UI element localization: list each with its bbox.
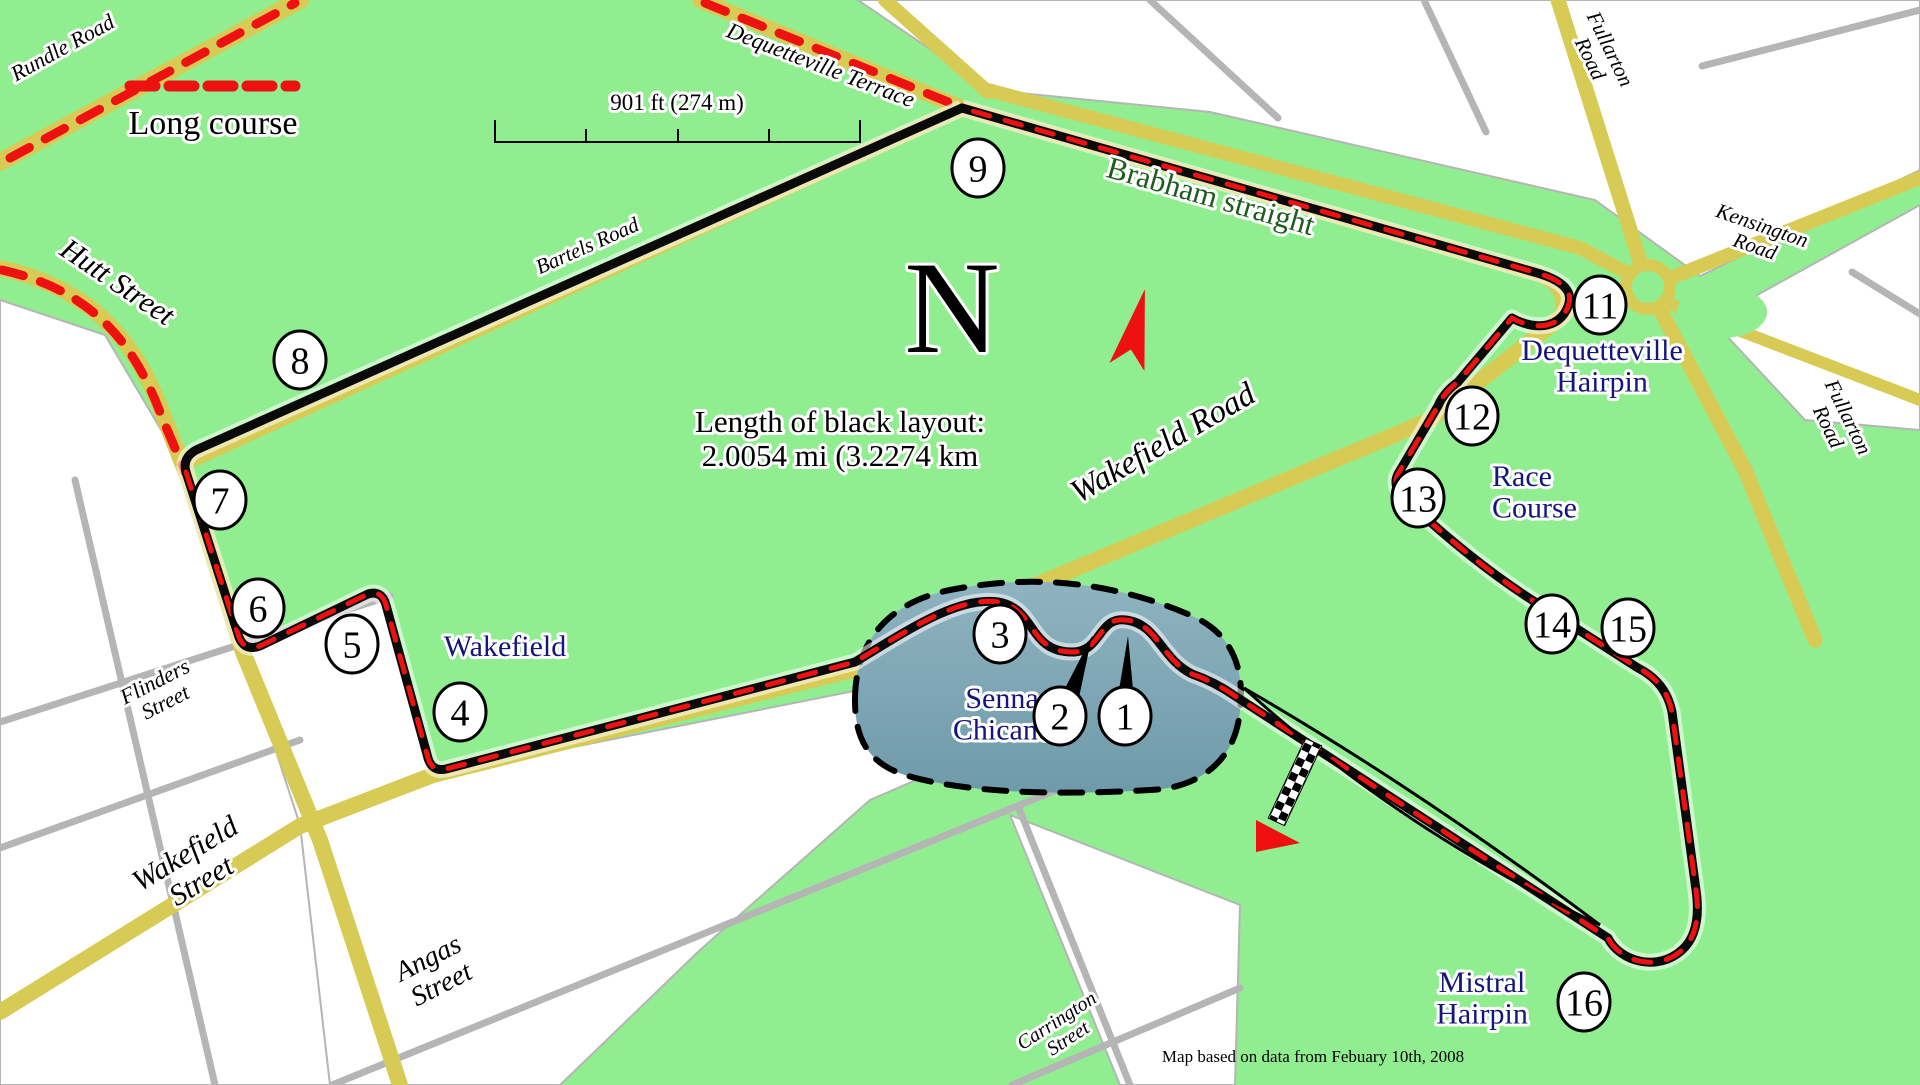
turn-marker-6: 6 <box>232 579 284 637</box>
svg-text:14: 14 <box>1533 605 1571 647</box>
turn-marker-12: 12 <box>1446 387 1498 445</box>
turn-marker-7: 7 <box>194 471 246 529</box>
svg-text:11: 11 <box>1582 286 1619 328</box>
turn-marker-14: 14 <box>1526 595 1578 653</box>
map-canvas: N 901 ft (274 m) Long course Length of b… <box>0 0 1920 1085</box>
svg-text:9: 9 <box>969 149 988 191</box>
roundabout-green-island <box>1677 286 1767 338</box>
scale-label: 901 ft (274 m) <box>610 90 744 115</box>
svg-text:6: 6 <box>249 589 268 631</box>
corner-label-mistral-hairpin: MistralHairpin <box>1436 966 1528 1031</box>
turn-marker-2: 2 <box>1034 687 1086 745</box>
corner-label-wakefield-corner: Wakefield <box>444 630 567 663</box>
length-note-line1: Length of black layout: <box>695 404 985 439</box>
turn-marker-1: 1 <box>1099 687 1151 745</box>
roundabout <box>1626 265 1670 309</box>
circuit-map: N 901 ft (274 m) Long course Length of b… <box>0 0 1920 1085</box>
attribution: Map based on data from Febuary 10th, 200… <box>1162 1047 1464 1066</box>
turn-marker-3: 3 <box>974 605 1026 663</box>
svg-text:3: 3 <box>991 615 1010 657</box>
turn-marker-9: 9 <box>952 139 1004 197</box>
svg-text:MistralHairpin: MistralHairpin <box>1436 966 1528 1031</box>
turn-marker-11: 11 <box>1574 276 1626 334</box>
turn-marker-4: 4 <box>434 683 486 741</box>
senna-chicane-zone <box>855 582 1241 793</box>
legend-long-course-label: Long course <box>128 105 297 142</box>
svg-text:4: 4 <box>451 693 470 735</box>
svg-text:12: 12 <box>1453 397 1491 439</box>
turn-marker-8: 8 <box>274 331 326 389</box>
svg-text:2: 2 <box>1051 697 1070 739</box>
svg-text:Wakefield: Wakefield <box>444 630 567 663</box>
svg-text:5: 5 <box>343 625 362 667</box>
svg-text:15: 15 <box>1609 609 1647 651</box>
svg-text:1: 1 <box>1116 697 1135 739</box>
svg-text:13: 13 <box>1399 479 1437 521</box>
svg-text:16: 16 <box>1565 983 1603 1025</box>
compass-n: N <box>904 234 999 381</box>
svg-text:7: 7 <box>211 481 230 523</box>
length-note-line2: 2.0054 mi (3.2274 km <box>702 438 978 473</box>
turn-marker-13: 13 <box>1392 469 1444 527</box>
turn-marker-16: 16 <box>1558 973 1610 1031</box>
turn-marker-15: 15 <box>1602 599 1654 657</box>
svg-text:8: 8 <box>291 341 310 383</box>
turn-marker-5: 5 <box>326 615 378 673</box>
